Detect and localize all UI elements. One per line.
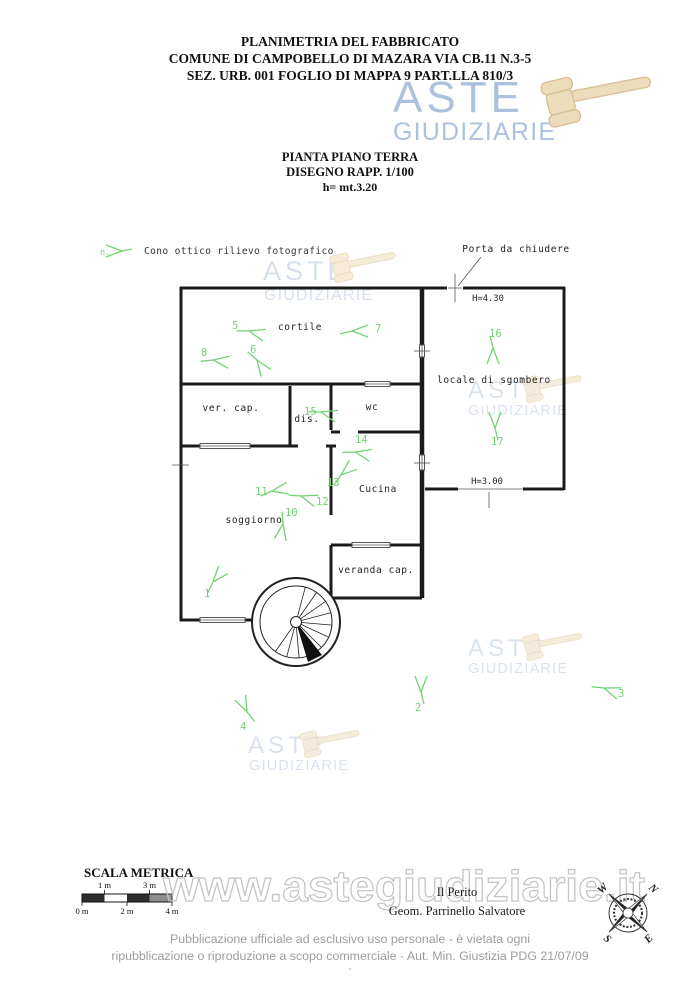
- photo-cone-marker: 8: [200, 347, 229, 368]
- photo-cone-marker: 3: [591, 678, 625, 700]
- photo-cone-number: 4: [240, 721, 246, 733]
- door-to-close-note: Porta da chiudere: [462, 244, 569, 255]
- photo-cone-number: 1: [204, 588, 210, 600]
- plan-annotations: Porta da chiudere H=4.30 H=3.00: [462, 244, 569, 487]
- photo-cone-marker: 16: [487, 328, 502, 364]
- room-label-locale: locale di sgombero: [437, 375, 551, 386]
- plan-title: PIANTA PIANO TERRA: [0, 150, 700, 165]
- doc-cadastre: SEZ. URB. 001 FOGLIO DI MAPPA 9 PART.LLA…: [0, 67, 700, 84]
- footer-line-2: ripubblicazione o riproduzione a scopo c…: [0, 948, 700, 965]
- document-page: PLANIMETRIA DEL FABBRICATO COMUNE DI CAM…: [0, 0, 700, 990]
- footer-line-1: Pubblicazione ufficiale ad esclusivo uso…: [0, 931, 700, 948]
- photo-cone-marker: 14: [342, 434, 372, 461]
- room-label-ver-cap: ver. cap.: [203, 403, 260, 414]
- photo-cone-number: 10: [285, 507, 298, 519]
- photo-cone-number: 5: [232, 320, 238, 332]
- scale-tick-1m: 1 m: [98, 880, 111, 890]
- room-label-veranda: veranda cap.: [338, 565, 414, 576]
- photo-cone-number: 6: [250, 344, 256, 356]
- watermark-top: ASTE GIUDIZIARIE: [263, 252, 396, 304]
- document-subtitle: PIANTA PIANO TERRA DISEGNO RAPP. 1/100 h…: [0, 150, 700, 195]
- plan-scale-note: DISEGNO RAPP. 1/100: [0, 165, 700, 180]
- height-label-bottom: H=3.00: [471, 477, 503, 487]
- footer-dash: -: [0, 965, 700, 975]
- gavel-icon: [299, 730, 359, 758]
- photo-cone-marker: 7: [340, 323, 381, 337]
- spiral-staircase: [252, 578, 340, 666]
- photo-cone-number: 12: [316, 496, 329, 508]
- photo-cone-number: 7: [375, 323, 381, 335]
- watermark-bottom-left: ASTE GIUDIZIARIE: [248, 730, 360, 774]
- photo-cone-number: 13: [327, 477, 340, 489]
- scale-tick-2m: 2 m: [121, 906, 134, 916]
- signature-role: Il Perito: [352, 883, 562, 902]
- photo-cone-marker: 12: [288, 487, 329, 508]
- watermark-giudiziarie: GIUDIZIARIE: [468, 661, 568, 677]
- document-footer: Pubblicazione ufficiale ad esclusivo uso…: [0, 931, 700, 975]
- room-label-cortile: cortile: [278, 322, 322, 333]
- plan-height-note: h= mt.3.20: [0, 180, 700, 195]
- photo-cone-marker: 1: [201, 566, 228, 600]
- photo-cone-marker: 4: [235, 695, 258, 733]
- watermark-giudiziarie: GIUDIZIARIE: [468, 403, 568, 419]
- room-label-cucina: Cucina: [359, 484, 397, 495]
- scale-tick-3m: 3 m: [143, 880, 156, 890]
- doc-title: PLANIMETRIA DEL FABBRICATO: [0, 33, 700, 50]
- doc-address: COMUNE DI CAMPOBELLO DI MAZARA VIA CB.11…: [0, 50, 700, 67]
- height-label-top: H=4.30: [472, 294, 504, 304]
- legend-marker-label: n.: [100, 248, 110, 258]
- compass-north: N: [645, 881, 661, 897]
- photo-cone-number: 15: [304, 406, 317, 418]
- room-label-soggiorno: soggiorno: [226, 515, 283, 526]
- watermark-bottom-right: ASTE GIUDIZIARIE: [468, 633, 582, 677]
- scale-tick-0m: 0 m: [76, 906, 89, 916]
- gavel-icon: [521, 633, 581, 661]
- photo-cone-number: 14: [355, 434, 368, 446]
- photo-cone-number: 3: [618, 688, 624, 700]
- watermark-giudiziarie: GIUDIZIARIE: [264, 287, 373, 304]
- document-header: PLANIMETRIA DEL FABBRICATO COMUNE DI CAM…: [0, 33, 700, 84]
- photo-cone-number: 16: [489, 328, 502, 340]
- expert-signature: Il Perito Geom. Parrinello Salvatore: [352, 883, 562, 921]
- gavel-icon: [329, 252, 396, 283]
- room-labels: cortile ver. cap. dis. wc locale di sgom…: [203, 322, 551, 576]
- photo-cone-number: 2: [415, 702, 421, 714]
- watermark-giudiziarie: GIUDIZIARIE: [249, 758, 349, 774]
- photo-cone-marker: 2: [415, 676, 427, 714]
- photo-cone-marker: 5: [232, 320, 266, 341]
- photo-cone-number: 8: [201, 347, 207, 359]
- floor-plan-canvas: ASTE GIUDIZIARIE n. Cono ottico rilievo …: [0, 0, 700, 990]
- logo-giudiziarie-text: GIUDIZIARIE: [393, 118, 556, 146]
- photo-cone-marker: 6: [245, 344, 271, 377]
- signature-name: Geom. Parrinello Salvatore: [352, 902, 562, 921]
- photo-cone-marker: 11: [255, 482, 289, 499]
- photo-cone-number: 11: [255, 486, 268, 498]
- room-label-wc: wc: [366, 402, 379, 413]
- photo-cone-number: 17: [491, 436, 504, 448]
